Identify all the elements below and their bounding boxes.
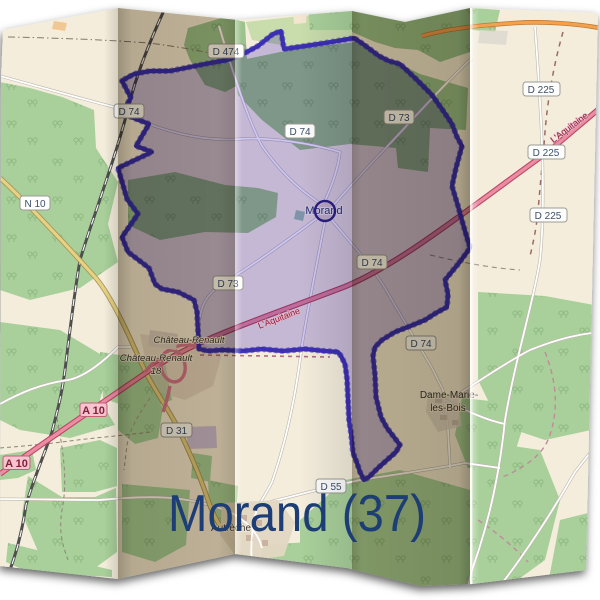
svg-text:Morand (37): Morand (37) bbox=[168, 485, 426, 543]
svg-text:D 31: D 31 bbox=[222, 571, 244, 582]
